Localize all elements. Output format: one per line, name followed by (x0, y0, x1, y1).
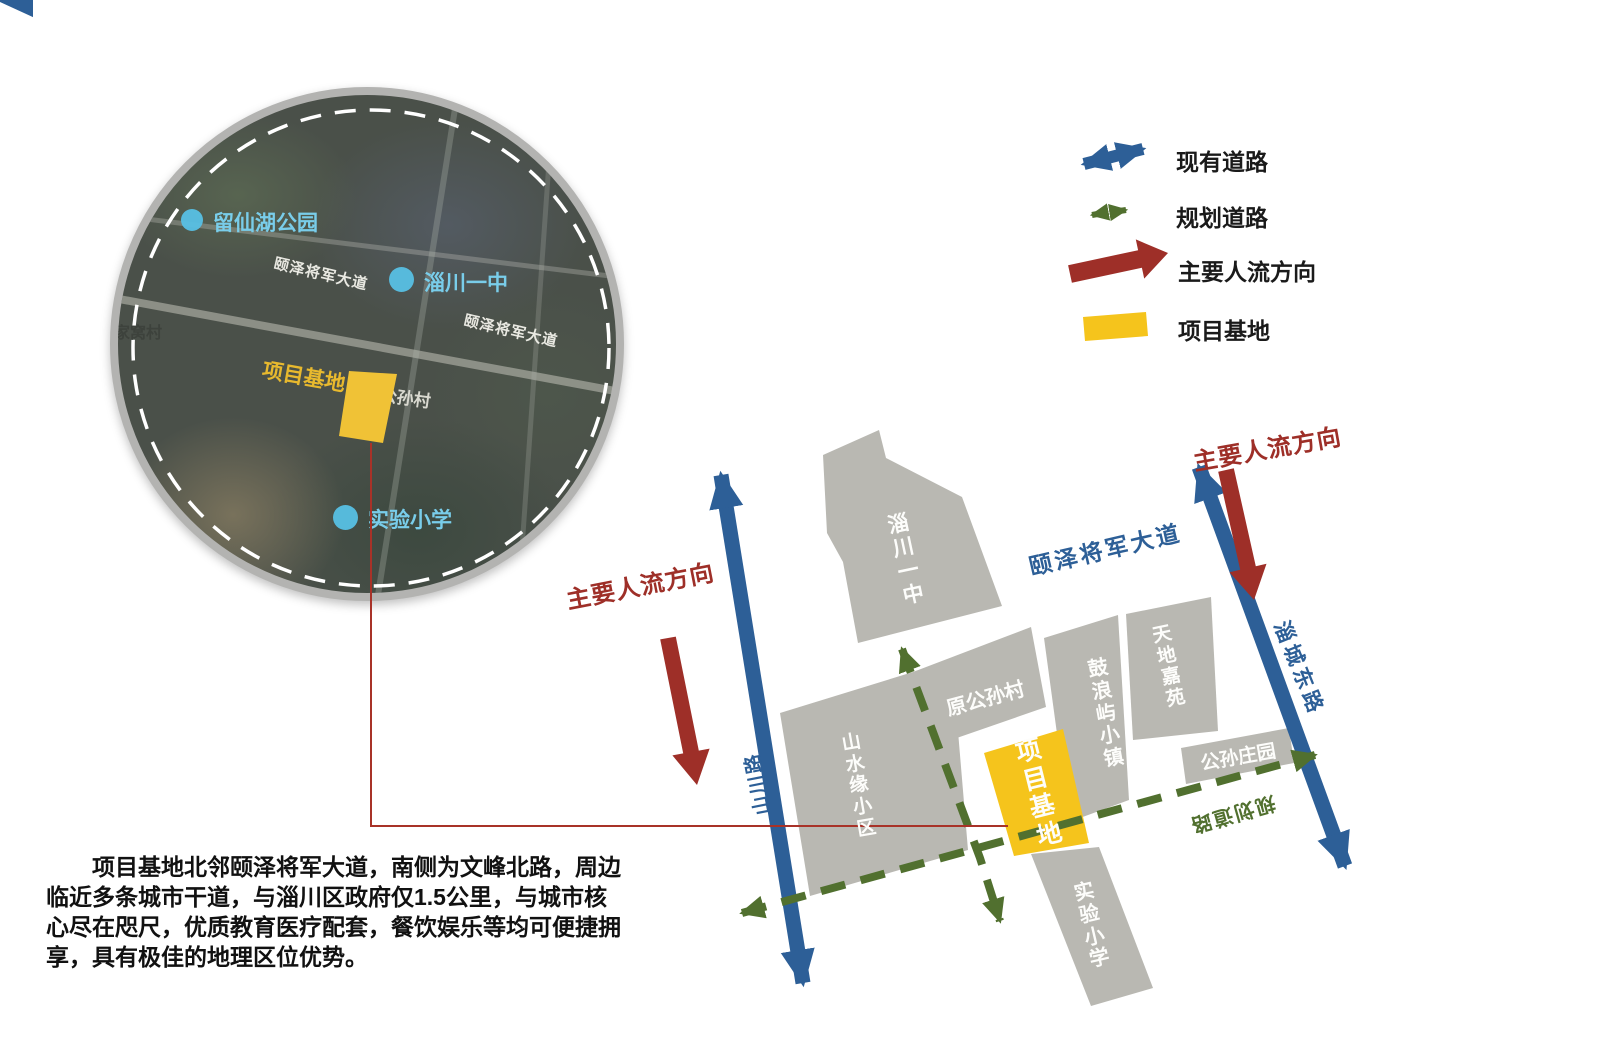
map-block-label-zichuan-no1: 淄川一中 (885, 511, 927, 609)
map-block-label-gulangyu: 鼓浪屿小镇 (1085, 656, 1126, 772)
legend-existing-road-icon (1084, 149, 1143, 164)
poi-dot-school-mid (389, 267, 414, 292)
map-road-label-zicheng-east: 淄城东路 (1267, 616, 1332, 720)
map-block-label-experimental-primary: 实验小学 (1071, 879, 1113, 973)
map-block-label-gongsun-manor: 公孙庄园 (1198, 736, 1278, 776)
map-site-label: 项目基地 (1012, 734, 1066, 851)
flow-arrow-right (1218, 468, 1266, 600)
poi-dot-school-south (333, 505, 358, 530)
map-road-label-yize-avenue: 颐泽将军大道 (1025, 514, 1185, 582)
map-block-label-tiandi-jiayuan: 天地嘉苑 (1150, 623, 1188, 712)
legend-flow-arrow-icon (1068, 239, 1168, 282)
flow-arrow-left (660, 637, 709, 785)
legend-label-planned-road: 规划道路 (1176, 199, 1268, 233)
legend-label-flow: 主要人流方向 (1178, 253, 1316, 287)
satellite-label-village-west: 家窝村 (114, 319, 162, 343)
satellite-label-park: 留仙湖公园 (213, 207, 318, 237)
satellite-label-school-mid: 淄川一中 (424, 267, 508, 297)
legend-label-existing-road: 现有道路 (1176, 143, 1268, 177)
legend-site-swatch-icon (1083, 312, 1148, 341)
satellite-label-school-south: 实验小学 (368, 504, 452, 534)
description-text: 项目基地北邻颐泽将军大道，南侧为文峰北路，周边 临近多条城市干道，与淄川区政府仅… (46, 852, 676, 972)
map-road-label-shanchuan: 山川路 (737, 750, 776, 817)
poi-dot-park (181, 209, 203, 231)
legend-planned-road-icon (1092, 210, 1126, 215)
description-line: 心尽在咫尺，优质教育医疗配套，餐饮娱乐等均可便捷拥 (46, 912, 676, 942)
legend-label-site: 项目基地 (1178, 312, 1270, 346)
description-line: 享，具有极佳的地理区位优势。 (46, 942, 676, 972)
description-line: 项目基地北邻颐泽将军大道，南侧为文峰北路，周边 (46, 852, 676, 882)
slide: 留仙湖公园 淄川一中 颐泽将军大道 颐泽将军大道 家窝村 项目基地 公孙村 实验… (0, 0, 1600, 1064)
satellite-map: 留仙湖公园 淄川一中 颐泽将军大道 颐泽将军大道 家窝村 项目基地 公孙村 实验… (110, 87, 624, 601)
road-shanchuan (721, 475, 803, 983)
map-block-label-shanshuiyuan: 山水缘小区 (839, 731, 878, 841)
map-flow-label-right: 主要人流方向 (1190, 417, 1344, 478)
description-line: 临近多条城市干道，与淄川区政府仅1.5公里，与城市核 (46, 882, 676, 912)
legend-icons (1068, 149, 1168, 341)
city-blocks (780, 430, 1294, 1006)
map-block-label-yuan-gongsun: 原公孙村 (943, 673, 1028, 722)
map-road-label-planned: 规划道路 (1187, 790, 1280, 842)
block-shanshuiyuan (780, 660, 968, 896)
